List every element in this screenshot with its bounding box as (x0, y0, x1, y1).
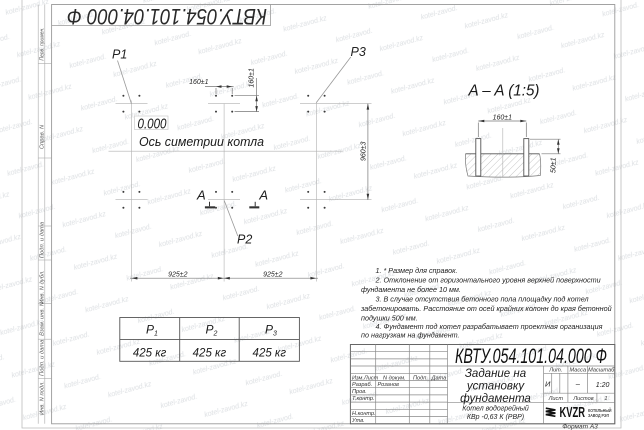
svg-text:425 кг: 425 кг (193, 348, 227, 360)
svg-text:3. В случае отсутствия бетонно: 3. В случае отсутствия бетонного пола пл… (376, 295, 589, 304)
svg-text:КВр -0,63 К (РВР): КВр -0,63 К (РВР) (467, 414, 524, 421)
svg-text:установку: установку (466, 381, 526, 393)
svg-text:Котел водогрейный: Котел водогрейный (462, 405, 529, 413)
svg-text:1:20: 1:20 (596, 382, 610, 389)
svg-text:Изм.Лист: Изм.Лист (352, 375, 379, 381)
svg-text:P1: P1 (112, 48, 127, 62)
svg-text:фундамента: фундамента (460, 393, 531, 405)
svg-text:Пров.: Пров. (352, 389, 367, 395)
svg-text:1. * Размер для справок.: 1. * Размер для справок. (376, 266, 458, 275)
svg-text:425 кг: 425 кг (133, 348, 167, 360)
svg-text:A – A (1:5): A – A (1:5) (468, 82, 540, 99)
svg-text:Масштаб: Масштаб (588, 368, 615, 374)
svg-text:Лит.: Лит. (548, 368, 562, 374)
svg-text:Инв. N подл.: Инв. N подл. (40, 381, 46, 415)
svg-text:Н.контр.: Н.контр. (352, 411, 376, 417)
svg-text:по нагрузкам на фундамент.: по нагрузкам на фундамент. (361, 331, 460, 340)
svg-text:160±1: 160±1 (189, 79, 209, 86)
svg-text:Ось симетрии котла: Ось симетрии котла (139, 135, 264, 149)
svg-text:Утв.: Утв. (351, 418, 365, 424)
svg-text:–: – (575, 380, 581, 389)
svg-text:160±1: 160±1 (493, 114, 513, 121)
svg-text:50±1: 50±1 (551, 157, 558, 173)
svg-text:2. Отклонение от горизонтально: 2. Отклонение от горизонтального уровня … (375, 276, 601, 285)
svg-text:A: A (258, 188, 268, 203)
svg-text:P2: P2 (237, 232, 252, 246)
svg-text:КВТУ.054.101.04.000 Ф: КВТУ.054.101.04.000 Ф (455, 344, 607, 368)
svg-text:Т.контр.: Т.контр. (352, 396, 375, 402)
svg-text:ЗАВОД РЭП: ЗАВОД РЭП (588, 413, 609, 418)
svg-text:1: 1 (604, 396, 607, 402)
svg-text:160±1: 160±1 (249, 68, 256, 88)
svg-text:Перв. примен.: Перв. примен. (40, 27, 46, 60)
svg-text:Справ. N: Справ. N (40, 124, 46, 149)
svg-text:И: И (545, 380, 551, 389)
svg-text:Взам. инв. N: Взам. инв. N (40, 301, 46, 336)
svg-text:A: A (196, 188, 206, 203)
svg-text:Подп.: Подп. (413, 375, 428, 381)
svg-text:925±2: 925±2 (263, 271, 283, 278)
svg-text:N докум.: N докум. (383, 375, 406, 381)
svg-text:Задание на: Задание на (465, 368, 526, 380)
svg-text:P3: P3 (351, 45, 366, 59)
svg-text:Подп. и дата: Подп. и дата (40, 339, 46, 376)
svg-text:Подп. и дата: Подп. и дата (40, 221, 46, 258)
svg-text:Инв. N дубл.: Инв. N дубл. (40, 270, 46, 304)
svg-text:960±3: 960±3 (361, 141, 368, 161)
svg-text:Формат А3: Формат А3 (562, 424, 598, 430)
svg-text:Разраб.: Разраб. (352, 382, 372, 388)
svg-text:Лист: Лист (548, 396, 564, 402)
svg-text:925±2: 925±2 (168, 271, 188, 278)
svg-text:фундамента не более 10 мм.: фундамента не более 10 мм. (361, 285, 461, 294)
svg-text:Масса: Масса (570, 368, 587, 374)
svg-text:KVZR: KVZR (560, 404, 586, 421)
svg-text:Дата: Дата (431, 375, 447, 381)
svg-text:забетонировать. Расстояние от: забетонировать. Расстояние от осей крайн… (360, 304, 612, 313)
svg-text:0.000: 0.000 (138, 115, 168, 132)
svg-text:КВТУ.054.101.04.000 Ф: КВТУ.054.101.04.000 Ф (67, 4, 267, 29)
svg-text:Розанов: Розанов (378, 382, 400, 388)
svg-text:425 кг: 425 кг (253, 348, 287, 360)
svg-text:Листов: Листов (572, 396, 593, 402)
